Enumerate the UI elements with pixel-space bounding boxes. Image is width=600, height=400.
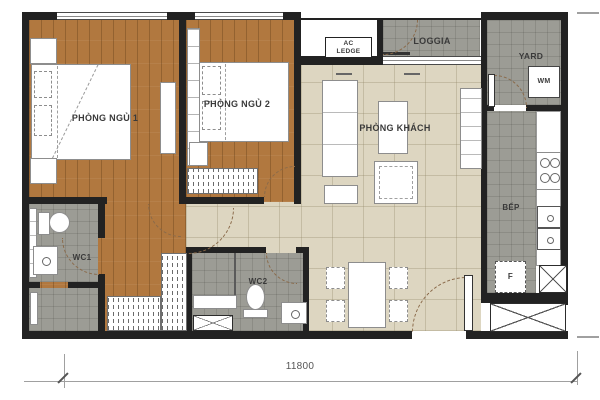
shaft bbox=[539, 265, 567, 293]
sink bbox=[281, 302, 307, 324]
fridge-label: F bbox=[508, 272, 513, 281]
toilet-bowl bbox=[246, 284, 265, 310]
wall bbox=[561, 12, 568, 305]
loggia-label: LOGGIA bbox=[392, 36, 472, 46]
toilet-tank bbox=[243, 309, 268, 318]
pillow bbox=[202, 66, 221, 95]
utility-cabinet bbox=[30, 292, 38, 325]
door-leaf bbox=[488, 74, 495, 107]
sink-drain bbox=[547, 237, 554, 244]
dimension-extension-line bbox=[577, 336, 599, 338]
armchair-cushion bbox=[379, 166, 413, 199]
window bbox=[195, 12, 283, 20]
wall bbox=[179, 197, 264, 204]
window bbox=[57, 12, 167, 20]
dining-table bbox=[348, 262, 386, 328]
yard-label: YARD bbox=[501, 52, 561, 62]
wall bbox=[481, 293, 568, 303]
threshold bbox=[404, 73, 420, 75]
bench bbox=[193, 295, 237, 309]
shoe-cabinet bbox=[107, 296, 161, 331]
shaft bbox=[193, 315, 233, 331]
loggia-parapet bbox=[301, 12, 481, 19]
fridge: F bbox=[495, 261, 526, 293]
dresser-cabinet bbox=[187, 168, 258, 194]
shaft bbox=[490, 303, 566, 332]
wall bbox=[294, 19, 301, 204]
dimension-extension-line bbox=[577, 351, 578, 385]
wall bbox=[466, 331, 568, 339]
dimension-line bbox=[24, 381, 578, 382]
nightstand bbox=[30, 158, 57, 184]
wall bbox=[29, 197, 107, 204]
sink-drain bbox=[547, 215, 554, 222]
tv-cabinet bbox=[460, 88, 482, 169]
dimension-extension-line bbox=[64, 354, 65, 388]
dimension-extension-line bbox=[577, 12, 599, 14]
burner bbox=[540, 173, 550, 183]
sink-drain bbox=[291, 310, 300, 319]
nightstand bbox=[189, 142, 208, 166]
wall bbox=[29, 282, 40, 288]
wall bbox=[179, 19, 186, 204]
window-glass-line bbox=[195, 16, 283, 17]
wall bbox=[22, 12, 29, 339]
window-glass-line bbox=[57, 16, 167, 17]
sliding-door-window bbox=[383, 56, 481, 65]
pillow bbox=[34, 71, 52, 98]
burner bbox=[540, 158, 550, 168]
toilet-bowl bbox=[49, 212, 70, 233]
chair bbox=[389, 267, 408, 289]
dimension-label: 11800 bbox=[250, 361, 350, 373]
washing-machine-label: WM bbox=[537, 78, 550, 86]
utility-floor bbox=[29, 288, 98, 331]
chair bbox=[326, 300, 345, 322]
wall bbox=[22, 331, 412, 339]
kitchen-sink bbox=[537, 228, 561, 250]
living-label: PHÒNG KHÁCH bbox=[335, 123, 455, 133]
bedroom1-label: PHÒNG NGỦ 1 bbox=[45, 113, 165, 123]
wall bbox=[98, 197, 105, 238]
side-table bbox=[324, 185, 358, 204]
door-leaf bbox=[464, 275, 473, 331]
hall-cabinet bbox=[161, 253, 187, 331]
burner bbox=[550, 173, 560, 183]
wc1-label: WC1 bbox=[62, 253, 102, 262]
stove bbox=[536, 152, 561, 190]
threshold bbox=[336, 73, 352, 75]
ac-ledge-box: AC LEDGE bbox=[325, 37, 372, 58]
chair bbox=[326, 267, 345, 289]
wc2-label: WC2 bbox=[238, 277, 278, 286]
armchair bbox=[374, 161, 418, 204]
wall bbox=[98, 288, 105, 334]
kitchen-label: BẾP bbox=[481, 203, 541, 212]
sink bbox=[33, 246, 58, 275]
washing-machine: WM bbox=[528, 66, 560, 98]
bedroom2-label: PHÒNG NGỦ 2 bbox=[177, 99, 297, 109]
ac-ledge-label: AC LEDGE bbox=[334, 40, 364, 55]
wardrobe bbox=[30, 38, 57, 64]
chair bbox=[389, 300, 408, 322]
window-glass-line bbox=[383, 60, 481, 61]
sink-drain bbox=[42, 257, 51, 266]
floor-plan: AC LEDGE WM F PHÒNG NGỦ 1 PHÒNG NGỦ 2 PH… bbox=[0, 0, 600, 400]
burner bbox=[550, 158, 560, 168]
